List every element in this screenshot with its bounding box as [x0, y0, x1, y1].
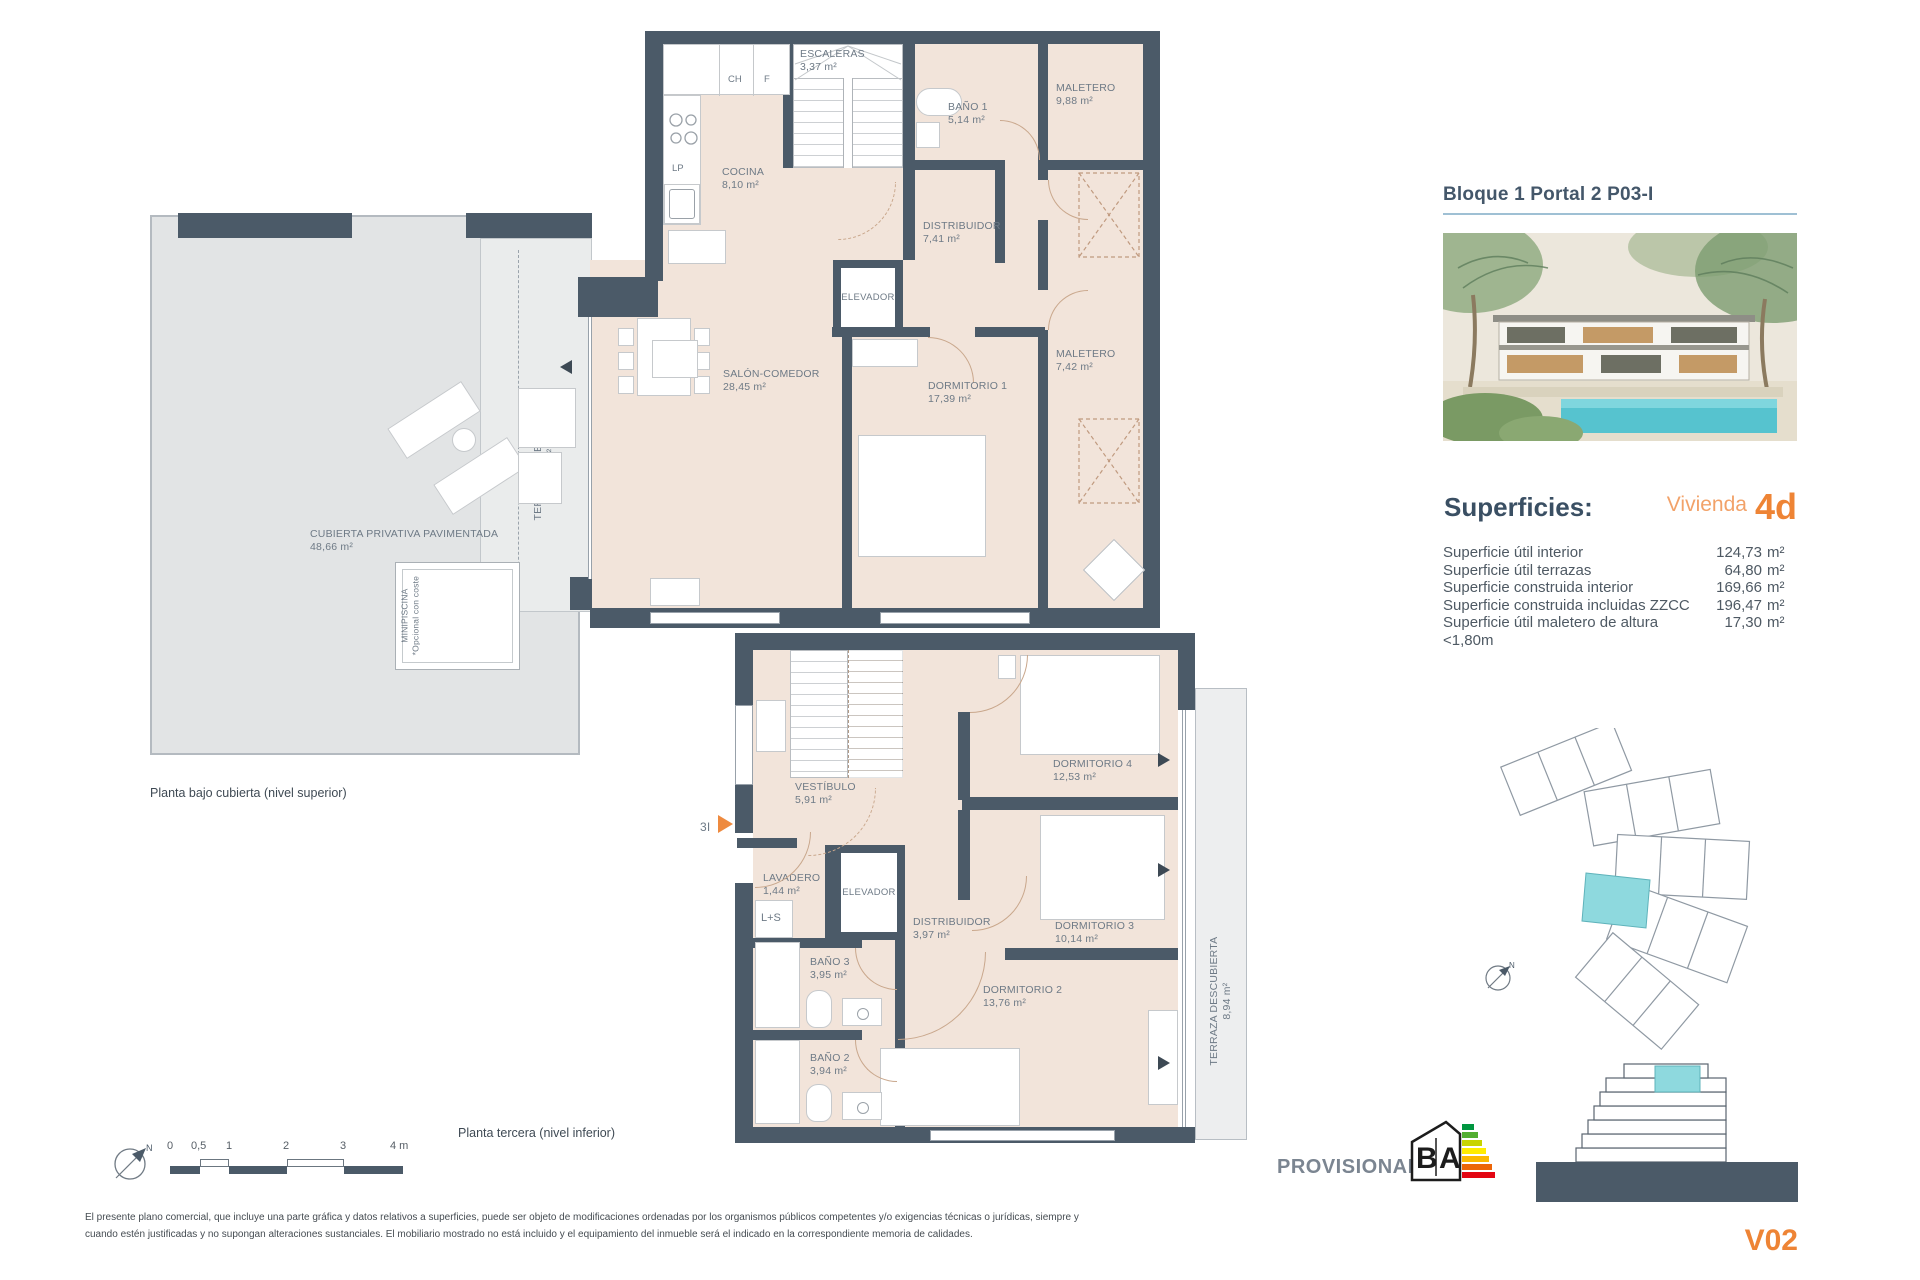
- floor-plan-sheet: MINIPISCINA *Opcional con coste CUBIERTA…: [0, 0, 1920, 1280]
- svg-text:A: A: [1439, 1142, 1461, 1175]
- svg-text:B: B: [1416, 1142, 1438, 1175]
- energy-label-group: PROVISIONAL B A: [0, 0, 1920, 1280]
- energy-rating-icon: B A: [1406, 1118, 1496, 1192]
- provisional-label: PROVISIONAL: [1277, 1156, 1420, 1179]
